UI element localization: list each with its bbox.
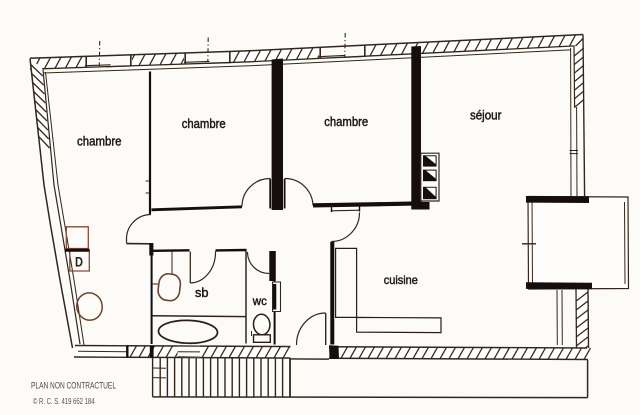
svg-text:chambre: chambre [182, 116, 226, 131]
svg-text:sb: sb [195, 286, 209, 300]
svg-text:PLAN NON CONTRACTUEL: PLAN NON CONTRACTUEL [31, 380, 116, 391]
svg-text:séjour: séjour [470, 108, 502, 123]
svg-text:D: D [75, 255, 83, 270]
svg-text:© R. C. S. 419 662 184: © R. C. S. 419 662 184 [33, 396, 95, 406]
svg-text:chambre: chambre [324, 114, 368, 129]
svg-text:cuisine: cuisine [384, 273, 418, 287]
svg-text:wc: wc [252, 294, 267, 308]
svg-text:chambre: chambre [77, 134, 122, 149]
